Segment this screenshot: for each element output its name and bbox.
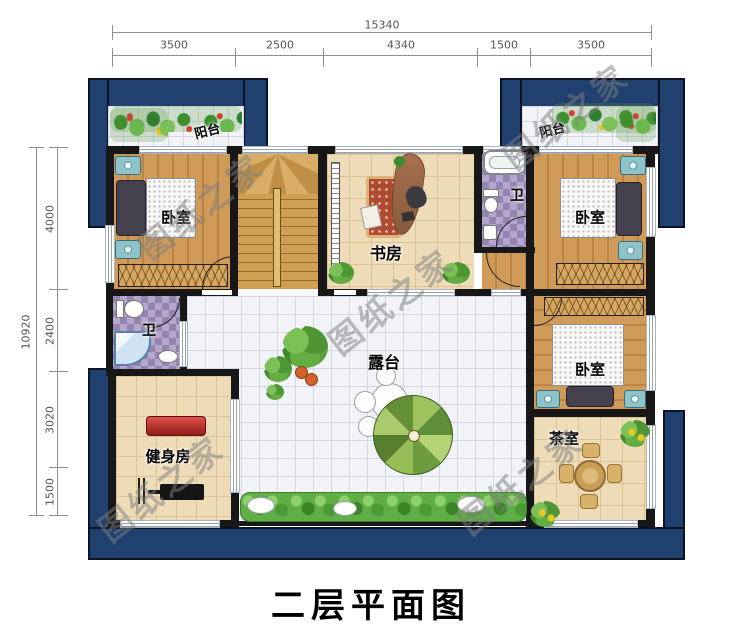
window <box>545 521 637 527</box>
dim-tick <box>651 48 652 67</box>
window <box>647 168 655 236</box>
wall <box>106 289 113 376</box>
dim-top-total: 15340 <box>365 19 400 32</box>
chair <box>607 464 622 483</box>
dim-left-seg-1: 4000 <box>44 205 57 233</box>
dim-top-seg-4: 1500 <box>490 39 518 52</box>
dim-top-seg-5: 3500 <box>577 39 605 52</box>
wall <box>526 289 655 296</box>
roof-wing-top-right-col-r <box>658 78 685 228</box>
window <box>140 147 226 153</box>
window <box>492 290 520 295</box>
dim-tick <box>49 371 68 372</box>
nightstand <box>624 390 646 408</box>
wall <box>106 289 536 296</box>
dim-left-seg-4: 1500 <box>44 478 57 506</box>
dim-tick <box>530 48 531 67</box>
dim-tick <box>112 48 113 67</box>
roof-wing-top-left <box>88 78 268 108</box>
sink <box>483 225 497 240</box>
dim-tick <box>49 289 68 290</box>
toilet-bowl <box>124 300 144 318</box>
toilet-bowl <box>484 197 498 213</box>
toilet-tank <box>483 189 499 197</box>
staircase-rail <box>273 188 281 287</box>
stairs-landing <box>238 289 318 296</box>
floor-plan-canvas: 15340 3500 2500 4340 1500 3500 10920 400… <box>0 0 750 639</box>
dim-left-seg-2: 2400 <box>44 317 57 345</box>
wall <box>318 146 327 296</box>
door-gap <box>334 290 356 295</box>
chair <box>580 494 598 509</box>
dim-tick <box>477 48 478 67</box>
room-label-study: 书房 <box>370 240 402 264</box>
shrub-stone <box>333 501 357 516</box>
window <box>647 316 655 390</box>
bed-bench <box>566 386 614 407</box>
roof-bottom-band <box>88 527 685 560</box>
room-label-bedroom-top-right: 卧室 <box>575 207 605 228</box>
bed-pillows <box>616 182 642 236</box>
potted-plant <box>620 420 650 447</box>
balcony-left-plants-2 <box>110 108 168 142</box>
dim-tick <box>235 48 236 67</box>
dim-tick <box>49 515 68 516</box>
dim-tick <box>112 25 113 40</box>
wall <box>474 146 482 253</box>
nightstand <box>618 241 643 260</box>
dim-left-seg-line <box>57 148 58 516</box>
tea-table <box>574 460 606 492</box>
wall <box>106 369 239 376</box>
dim-top-seg-2: 2500 <box>266 39 294 52</box>
window <box>106 226 114 282</box>
dim-top-seg-line <box>113 55 652 56</box>
dim-left-total-line <box>36 148 37 516</box>
dim-tick <box>29 147 44 148</box>
terrace-plant <box>266 384 284 400</box>
room-label-bedroom-mid-right: 卧室 <box>575 359 605 380</box>
parasol <box>373 395 453 475</box>
dim-tick <box>323 48 324 67</box>
window <box>180 322 187 366</box>
toilet-tank <box>116 300 124 318</box>
nightstand <box>536 390 560 408</box>
dim-top-seg-1: 3500 <box>160 39 188 52</box>
window <box>336 147 462 153</box>
flower-pot <box>305 373 318 386</box>
potted-plant <box>530 501 560 527</box>
window <box>231 400 239 492</box>
dim-top-seg-3: 4340 <box>387 39 415 52</box>
wall <box>526 409 655 417</box>
dim-tick <box>651 25 652 40</box>
nightstand <box>620 156 646 175</box>
page-title: 二层平面图 <box>271 578 471 627</box>
desk-plant <box>394 156 405 167</box>
room-label-bath-left: 卫 <box>142 320 156 340</box>
room-label-terrace: 露台 <box>368 349 400 373</box>
door-gap <box>202 290 232 295</box>
shrub-stone <box>247 497 275 514</box>
sink <box>158 350 178 363</box>
balcony-right-plants-2 <box>616 106 656 142</box>
dim-top-total-line <box>113 32 652 33</box>
room-label-bath-top: 卫 <box>510 185 524 205</box>
dim-left-total: 10920 <box>20 315 33 350</box>
dim-tick <box>29 515 44 516</box>
stepping-stone <box>354 391 376 413</box>
dim-left-seg-3: 3020 <box>44 406 57 434</box>
terrace-plant <box>264 356 292 382</box>
dim-tick <box>49 147 68 148</box>
dim-tick <box>49 467 68 468</box>
nightstand <box>115 156 141 175</box>
potted-plant <box>328 262 354 284</box>
wardrobe <box>556 263 644 285</box>
